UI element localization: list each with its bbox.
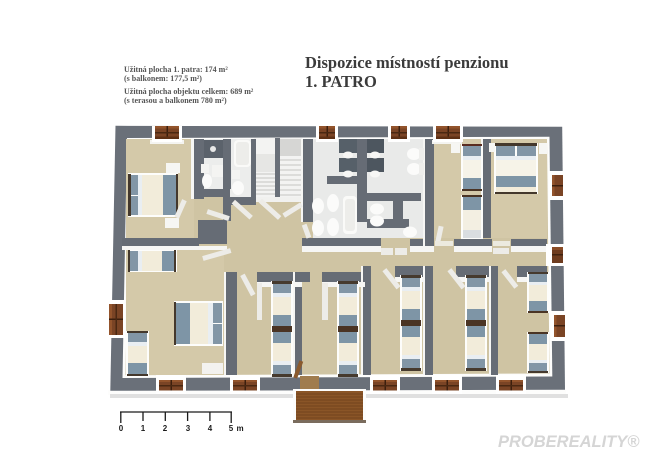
svg-text:m: m: [236, 424, 243, 433]
svg-text:3: 3: [186, 424, 191, 433]
svg-text:0: 0: [119, 424, 124, 433]
svg-text:Užitná plocha objektu celkem:: Užitná plocha objektu celkem: 689 m²: [124, 87, 254, 96]
svg-text:5: 5: [229, 424, 234, 433]
svg-text:(s balkonem: 177,5 m²): (s balkonem: 177,5 m²): [124, 74, 202, 83]
svg-text:1. PATRO: 1. PATRO: [305, 72, 377, 91]
svg-text:(s terasou a balkonem 780 m²): (s terasou a balkonem 780 m²): [124, 96, 227, 105]
svg-text:Dispozice místností penzionu: Dispozice místností penzionu: [305, 53, 509, 72]
svg-text:2: 2: [163, 424, 168, 433]
svg-text:1: 1: [141, 424, 146, 433]
svg-text:Užitná plocha 1. patra: 174 m²: Užitná plocha 1. patra: 174 m²: [124, 65, 228, 74]
svg-text:PROBEREALITY®: PROBEREALITY®: [498, 433, 640, 451]
svg-text:4: 4: [208, 424, 213, 433]
